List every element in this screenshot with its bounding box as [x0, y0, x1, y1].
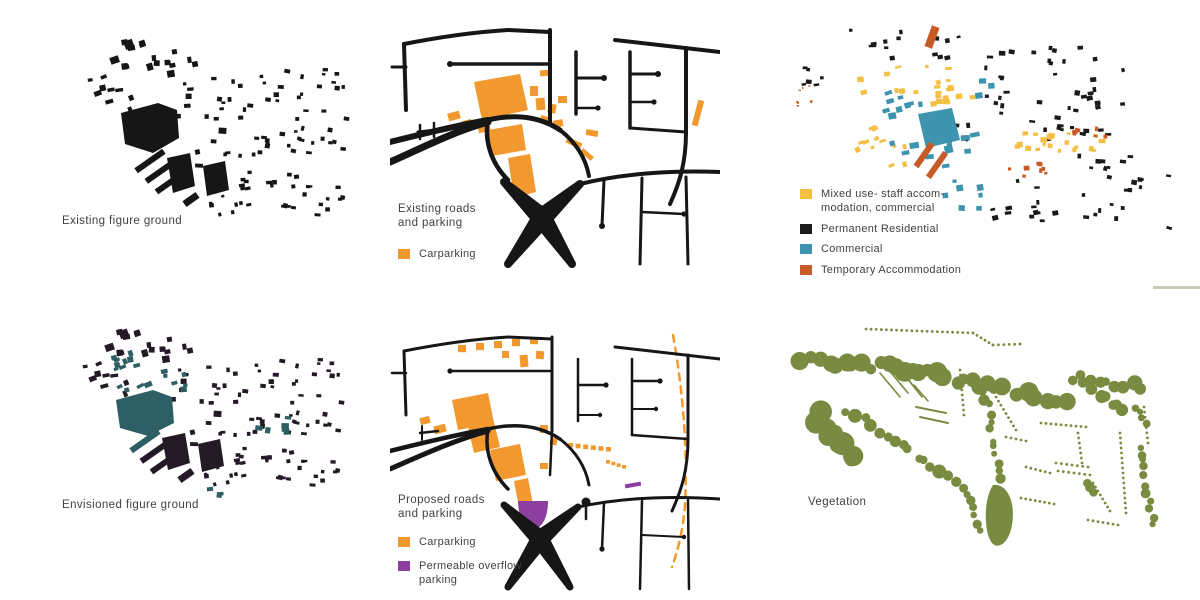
panel-land-use: Mixed use- staff accom- modation, commer… — [790, 22, 1195, 282]
existing-roads-legend: Carparking — [398, 248, 476, 262]
carparking-swatch — [398, 537, 410, 547]
legend-item-carparking: Carparking — [398, 248, 476, 262]
legend-item-temporary-accommodation: Temporary Accommodation — [800, 264, 961, 278]
panel-proposed-roads: Proposed roads and parking Carparking Pe… — [390, 305, 725, 597]
existing-figure-ground-label: Existing figure ground — [62, 214, 182, 228]
envisioned-figure-ground-label: Envisioned figure ground — [62, 498, 199, 512]
existing-figure-ground-map — [55, 18, 355, 238]
carparking-proposed-legend-label: Carparking — [419, 536, 476, 550]
permeable-parking-legend-label: Permeable overflow parking — [419, 560, 522, 588]
proposed-roads-legend: Carparking Permeable overflow parking — [398, 536, 522, 587]
stray-dash-mark — [1153, 286, 1200, 289]
vegetation-map — [788, 315, 1200, 567]
urban-analysis-poster: Existing figure ground Existing roads an… — [0, 0, 1200, 600]
temporary-accommodation-legend-label: Temporary Accommodation — [821, 264, 961, 278]
existing-roads-map — [390, 12, 720, 270]
carparking-swatch — [398, 249, 410, 259]
mixed-use-legend-label: Mixed use- staff accom- modation, commer… — [821, 188, 944, 216]
panel-vegetation: Vegetation — [788, 315, 1200, 580]
permeable-parking-swatch — [398, 561, 410, 571]
legend-item-mixed-use: Mixed use- staff accom- modation, commer… — [800, 188, 961, 216]
permanent-residential-legend-label: Permanent Residential — [821, 223, 939, 237]
panel-existing-figure-ground: Existing figure ground — [55, 18, 360, 253]
proposed-roads-label: Proposed roads and parking — [398, 493, 485, 522]
commercial-legend-label: Commercial — [821, 243, 883, 257]
permanent-residential-swatch — [800, 224, 812, 234]
envisioned-figure-ground-map — [50, 320, 355, 500]
carparking-legend-label: Carparking — [419, 248, 476, 262]
commercial-swatch — [800, 244, 812, 254]
panel-envisioned-figure-ground: Envisioned figure ground — [50, 320, 360, 520]
legend-item-permeable-parking: Permeable overflow parking — [398, 560, 522, 588]
existing-roads-label: Existing roads and parking — [398, 202, 476, 231]
panel-existing-roads: Existing roads and parking Carparking — [390, 12, 725, 284]
land-use-legend: Mixed use- staff accom- modation, commer… — [800, 188, 961, 278]
vegetation-label: Vegetation — [808, 495, 866, 509]
legend-item-carparking-proposed: Carparking — [398, 536, 522, 550]
temporary-accommodation-swatch — [800, 265, 812, 275]
legend-item-permanent-residential: Permanent Residential — [800, 223, 961, 237]
legend-item-commercial: Commercial — [800, 243, 961, 257]
mixed-use-swatch — [800, 189, 812, 199]
